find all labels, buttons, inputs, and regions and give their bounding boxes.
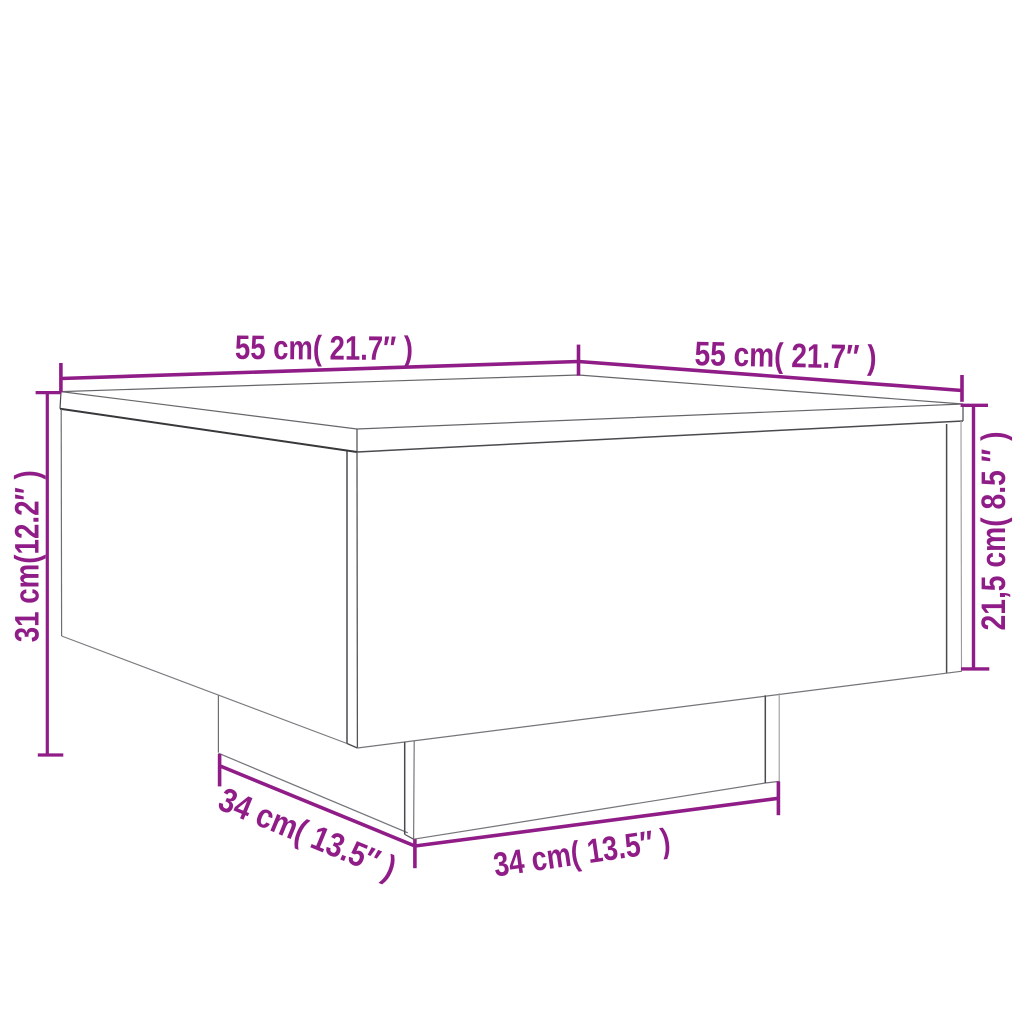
svg-text:31 cm(12.2″ ): 31 cm(12.2″ ) xyxy=(8,470,46,642)
svg-text:55 cm( 21.7″ ): 55 cm( 21.7″ ) xyxy=(694,335,877,377)
svg-text:55 cm( 21.7″ ): 55 cm( 21.7″ ) xyxy=(235,329,413,368)
svg-text:21,5 cm( 8.5 ″ ): 21,5 cm( 8.5 ″ ) xyxy=(975,432,1013,631)
